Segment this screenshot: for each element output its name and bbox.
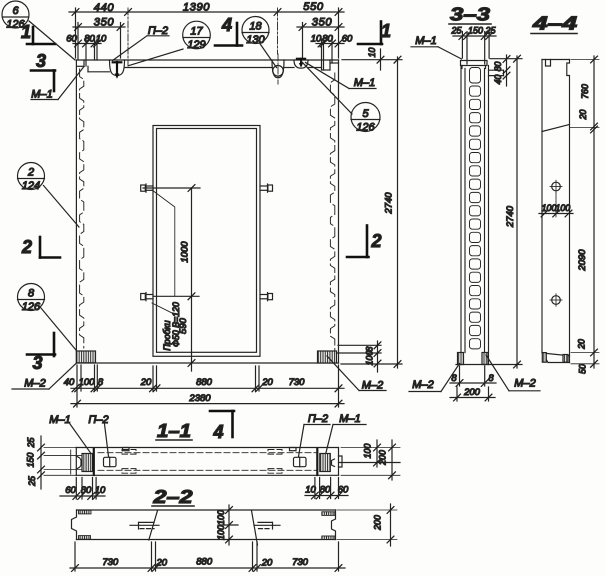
- svg-text:4–4: 4–4: [532, 14, 577, 34]
- svg-text:200: 200: [373, 515, 383, 531]
- svg-text:4: 4: [221, 15, 232, 35]
- svg-text:1390: 1390: [183, 2, 210, 14]
- svg-text:М–2: М–2: [514, 378, 535, 390]
- svg-text:80: 80: [493, 62, 503, 72]
- svg-text:100: 100: [363, 444, 373, 459]
- svg-text:2: 2: [370, 231, 381, 251]
- svg-text:50: 50: [578, 364, 588, 374]
- svg-text:550: 550: [303, 1, 324, 13]
- svg-text:60: 60: [342, 34, 353, 45]
- svg-text:100: 100: [216, 525, 226, 540]
- svg-text:880: 880: [196, 377, 213, 388]
- svg-text:40: 40: [493, 75, 503, 85]
- svg-text:40: 40: [64, 377, 75, 388]
- svg-text:730: 730: [289, 377, 306, 388]
- svg-text:150: 150: [26, 453, 36, 468]
- svg-text:20: 20: [577, 339, 587, 350]
- svg-text:1–1: 1–1: [157, 421, 191, 441]
- svg-text:20: 20: [261, 377, 273, 388]
- svg-text:2090: 2090: [577, 249, 588, 272]
- svg-text:20: 20: [156, 558, 168, 569]
- svg-text:1: 1: [381, 21, 391, 41]
- svg-text:25: 25: [26, 438, 36, 449]
- svg-text:126: 126: [356, 122, 375, 134]
- svg-text:3: 3: [32, 353, 42, 373]
- svg-text:440: 440: [94, 2, 115, 14]
- svg-text:150: 150: [468, 26, 483, 36]
- svg-text:100: 100: [542, 203, 557, 213]
- svg-text:10: 10: [367, 48, 377, 58]
- svg-text:8: 8: [488, 373, 494, 384]
- svg-text:129: 129: [187, 39, 205, 51]
- svg-text:760: 760: [580, 84, 590, 99]
- svg-text:М–1: М–1: [49, 414, 70, 426]
- svg-text:730: 730: [292, 557, 309, 568]
- svg-text:730: 730: [102, 557, 119, 568]
- svg-text:П–2: П–2: [308, 413, 328, 425]
- svg-text:10: 10: [311, 34, 322, 45]
- svg-text:130: 130: [246, 34, 265, 46]
- svg-text:350: 350: [312, 17, 333, 29]
- svg-text:4: 4: [212, 422, 223, 442]
- svg-text:60: 60: [338, 485, 349, 496]
- svg-text:М–1: М–1: [31, 89, 52, 101]
- svg-text:6: 6: [12, 5, 19, 17]
- svg-text:80: 80: [320, 485, 331, 496]
- svg-text:126: 126: [6, 19, 25, 31]
- svg-text:200: 200: [463, 387, 481, 398]
- svg-text:2–2: 2–2: [152, 487, 192, 507]
- svg-text:М–2: М–2: [24, 378, 45, 390]
- svg-text:100: 100: [365, 351, 375, 366]
- svg-text:М–1: М–1: [339, 413, 360, 425]
- svg-text:М–1: М–1: [415, 35, 436, 47]
- svg-text:М–1: М–1: [354, 77, 375, 89]
- svg-text:25: 25: [27, 476, 37, 487]
- svg-text:100: 100: [216, 510, 226, 525]
- svg-text:350: 350: [94, 17, 115, 29]
- svg-text:3–3: 3–3: [450, 5, 490, 25]
- svg-text:200: 200: [378, 450, 388, 466]
- svg-text:100: 100: [555, 203, 570, 213]
- svg-text:17: 17: [190, 26, 203, 38]
- svg-text:8: 8: [28, 288, 35, 300]
- svg-text:8: 8: [98, 377, 104, 388]
- svg-text:2740: 2740: [384, 192, 395, 215]
- svg-text:Ф50 В=120: Ф50 В=120: [171, 302, 181, 347]
- svg-text:880: 880: [196, 557, 213, 568]
- svg-text:2: 2: [21, 237, 32, 257]
- svg-text:18: 18: [249, 21, 262, 33]
- svg-text:20: 20: [261, 558, 273, 569]
- svg-text:2740: 2740: [505, 205, 516, 228]
- svg-text:3: 3: [36, 51, 46, 71]
- svg-text:60: 60: [65, 485, 76, 496]
- svg-text:1000: 1000: [179, 241, 190, 263]
- svg-text:25: 25: [484, 26, 496, 36]
- svg-text:20: 20: [578, 110, 588, 121]
- svg-text:М–2: М–2: [362, 380, 383, 392]
- svg-text:2: 2: [27, 167, 34, 179]
- svg-text:124: 124: [22, 180, 40, 192]
- svg-text:126: 126: [22, 301, 41, 313]
- svg-text:2380: 2380: [188, 393, 211, 404]
- svg-text:М–2: М–2: [412, 379, 433, 391]
- svg-text:25: 25: [450, 26, 462, 36]
- svg-text:20: 20: [140, 377, 152, 388]
- svg-text:П–2: П–2: [88, 414, 108, 426]
- svg-text:60: 60: [66, 34, 77, 45]
- svg-text:5: 5: [362, 108, 369, 120]
